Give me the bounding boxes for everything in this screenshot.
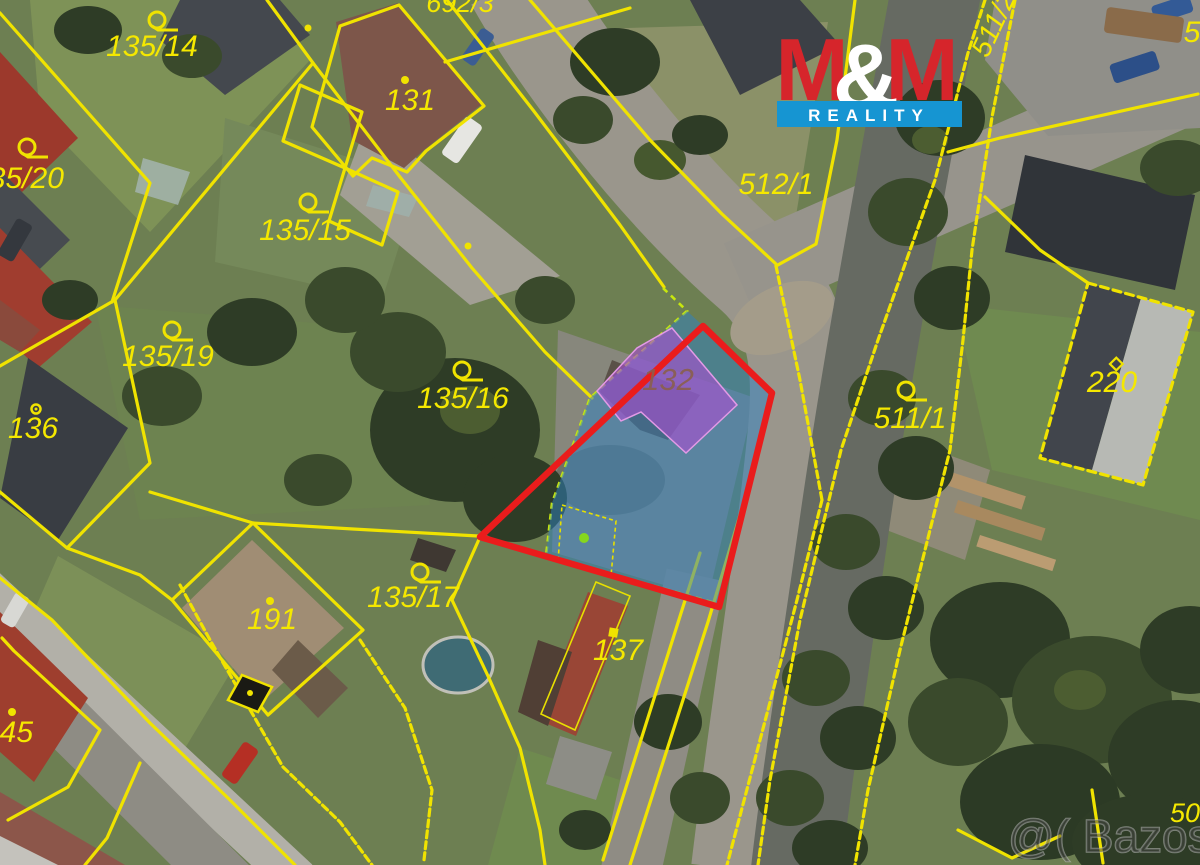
parcel-label-137: 137: [593, 634, 644, 667]
point-marker-145: [8, 708, 16, 716]
parcel-label-135-16: 135/16: [417, 382, 509, 415]
parcel-label-5-partial: 5: [1184, 16, 1200, 49]
parcel-label-132: 132: [642, 362, 694, 397]
parcel-label-220: 220: [1086, 366, 1137, 399]
car-red: [221, 741, 260, 786]
parcel-label-135-17: 135/17: [367, 581, 460, 614]
parcel-label-511-1: 511/1: [874, 402, 947, 435]
watermark-text: @( Bazos.cz: [1008, 810, 1200, 862]
map-canvas: 135/14 131 692/3 135/20 135/15 512/1 511…: [0, 0, 1200, 865]
logo-banner-text: REALITY: [808, 106, 930, 125]
parcel-label-512-1: 512/1: [738, 168, 813, 201]
parcel-label-135-14: 135/14: [106, 30, 198, 63]
realty-logo: M M & REALITY: [775, 20, 962, 128]
house-136: [0, 358, 128, 540]
parcel-label-692-3: 692/3: [426, 0, 494, 18]
point-marker-131: [401, 76, 409, 84]
parcel-label-136: 136: [8, 412, 58, 445]
parcel-label-135-15: 135/15: [259, 214, 351, 247]
car-blue: [461, 27, 496, 67]
parcel-label-191: 191: [247, 603, 297, 636]
aerial-cadastral-map: 135/14 131 692/3 135/20 135/15 512/1 511…: [0, 0, 1200, 865]
parcel-label-135-19: 135/19: [122, 340, 214, 373]
parcel-label-145: 145: [0, 716, 33, 749]
parcel-label-135-20: 135/20: [0, 162, 64, 195]
parcel-point: [579, 533, 589, 543]
parcel-label-131: 131: [385, 84, 435, 117]
